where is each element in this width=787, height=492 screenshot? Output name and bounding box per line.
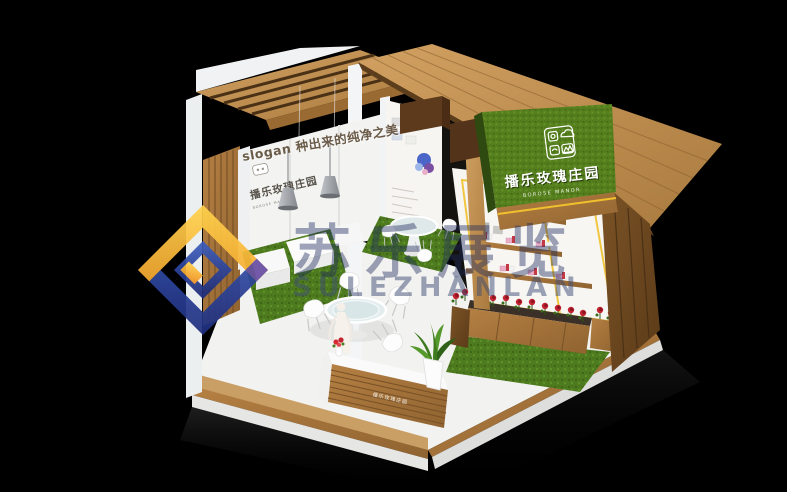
booth-render: 播乐玫瑰庄园 BOROSE MANOR xyxy=(0,0,787,492)
watermark-text-en: SULEZHANLAN xyxy=(292,272,581,303)
booth-scene: 播乐玫瑰庄园 BOROSE MANOR xyxy=(0,0,787,492)
